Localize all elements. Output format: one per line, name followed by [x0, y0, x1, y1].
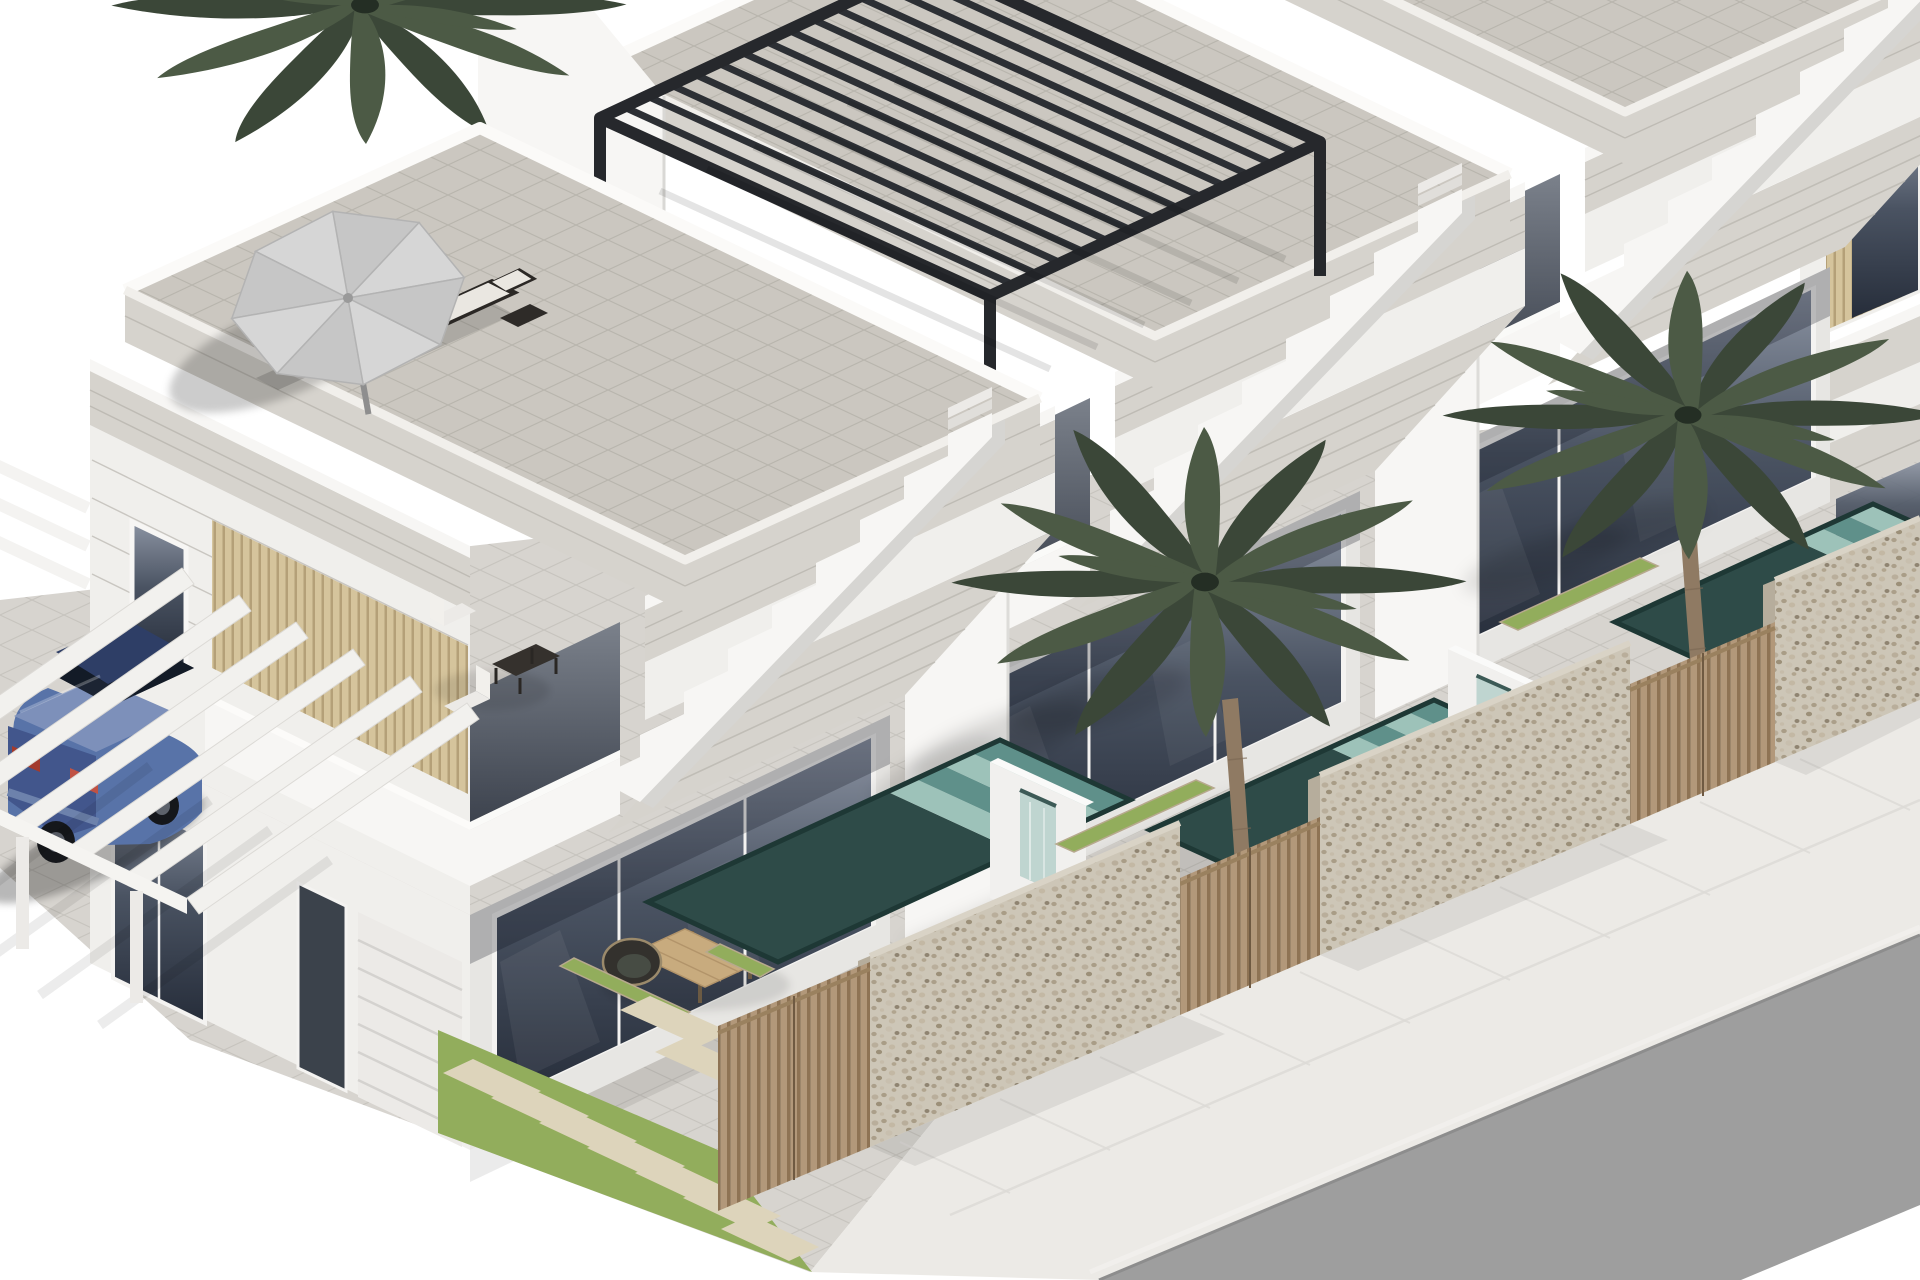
render-image [0, 0, 1920, 1280]
scene [0, 0, 1920, 1280]
entry-door [298, 883, 346, 1091]
